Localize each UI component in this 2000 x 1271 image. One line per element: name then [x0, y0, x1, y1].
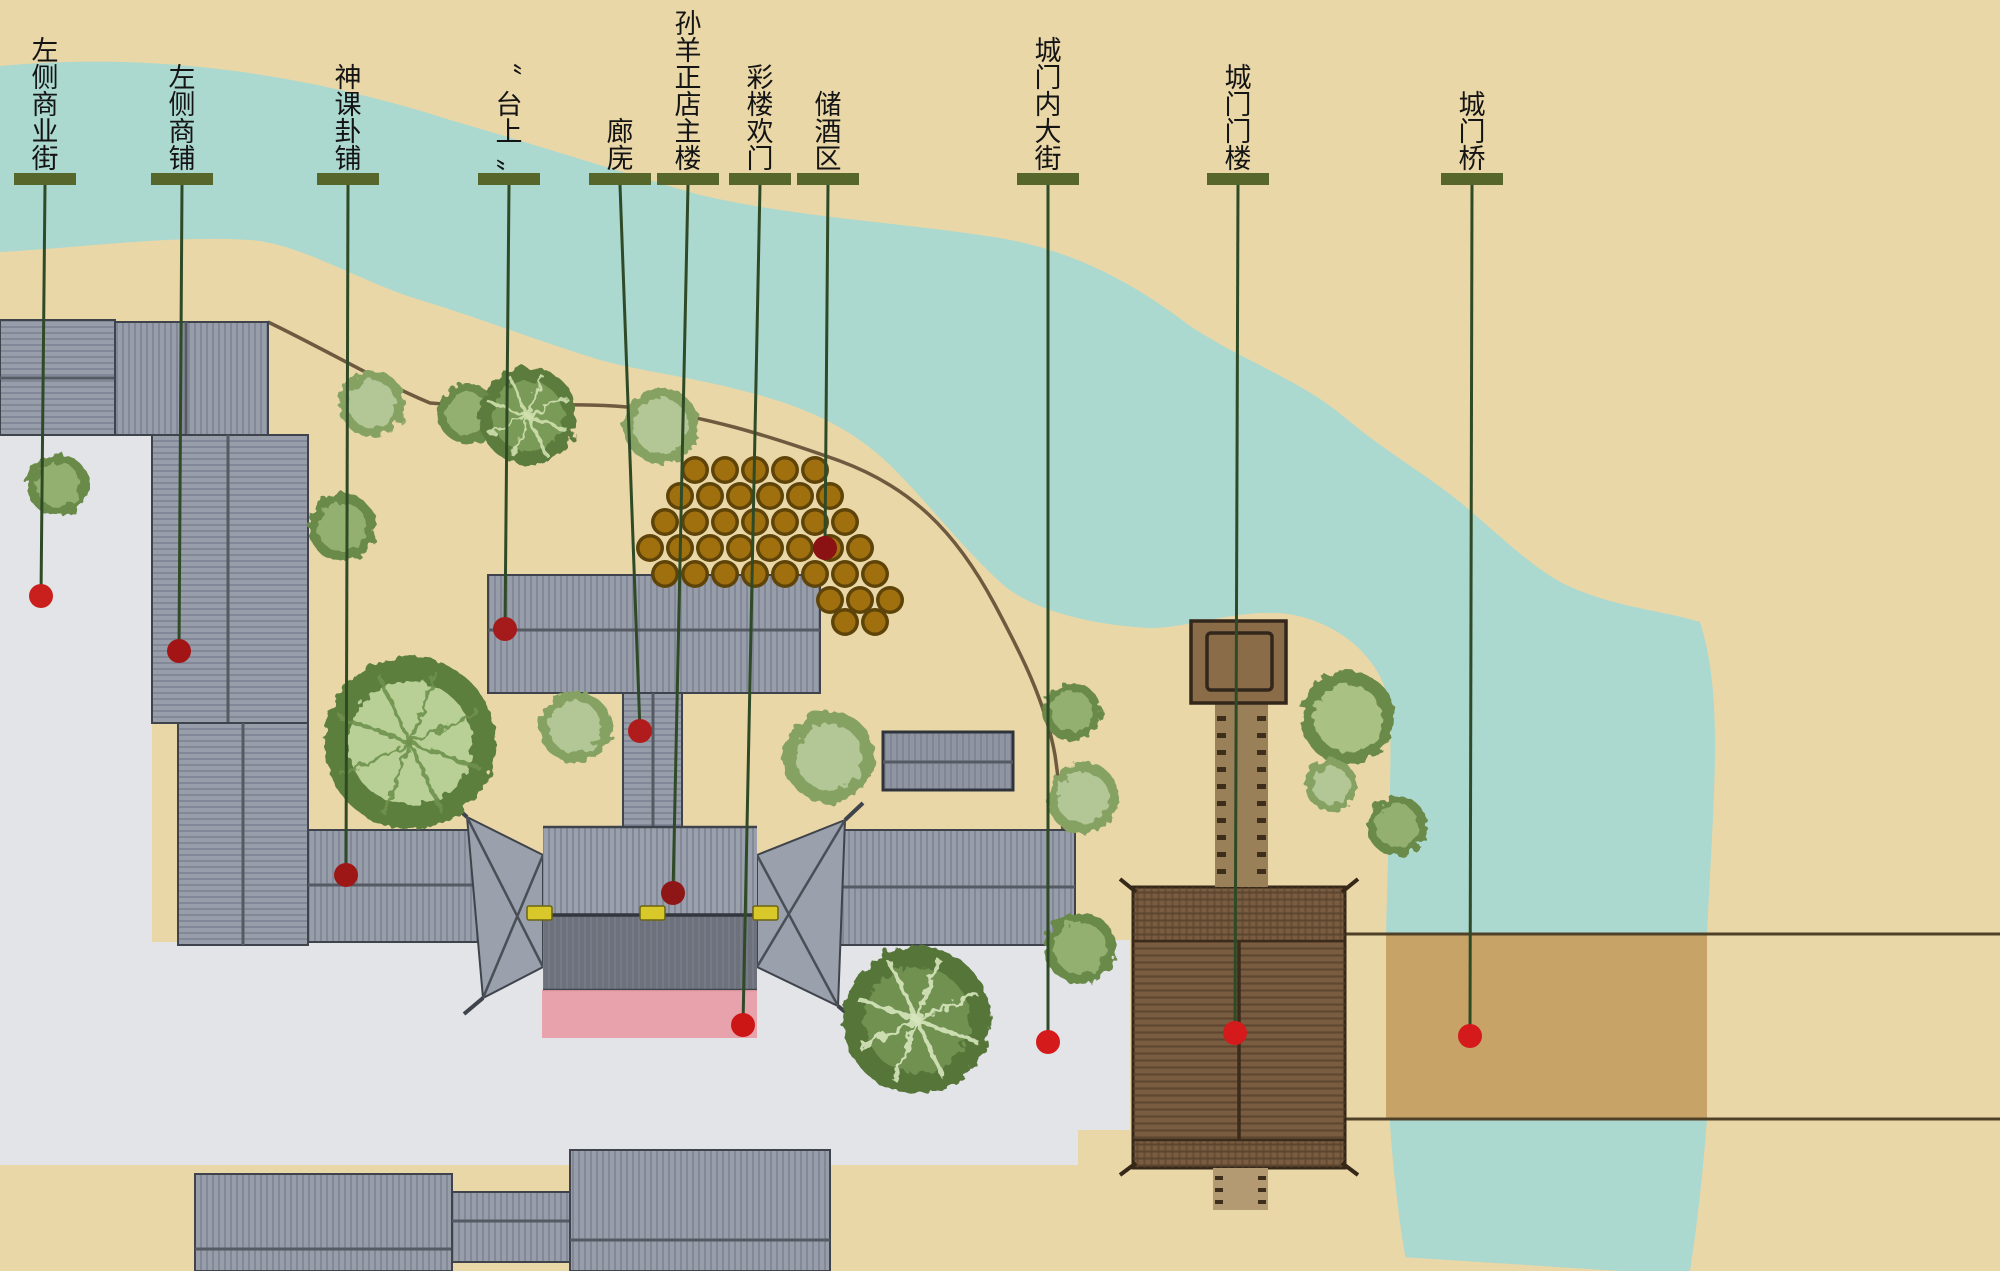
red-carpet [542, 990, 757, 1038]
walkway-step [1257, 750, 1266, 755]
wine-jar [861, 608, 889, 636]
stub-step [1215, 1188, 1223, 1192]
wine-jar [681, 560, 709, 588]
wine-jar [831, 508, 859, 536]
walkway-step [1217, 818, 1226, 823]
stub-step [1258, 1200, 1266, 1204]
label-text: 神课卦铺 [335, 63, 362, 175]
wine-jar [756, 482, 784, 510]
label-text: 孙羊正店主楼 [675, 9, 702, 175]
tree [623, 388, 699, 464]
walkway-step [1257, 818, 1266, 823]
wine-jar [771, 508, 799, 536]
building-divination-shop-row [308, 830, 490, 942]
walkway-step [1217, 852, 1226, 857]
wine-jar [816, 482, 844, 510]
building-west-shops-lower [178, 723, 308, 945]
wine-jar [831, 608, 859, 636]
wine-jar [741, 560, 769, 588]
walkway-step [1217, 750, 1226, 755]
marker-dot [493, 617, 517, 641]
marker-dot [167, 639, 191, 663]
walkway-step [1217, 835, 1226, 840]
walkway-step [1257, 852, 1266, 857]
gold-lintel [640, 906, 665, 920]
gold-lintel [527, 906, 552, 920]
stub-step [1215, 1200, 1223, 1204]
tree [479, 367, 577, 465]
walkway-step [1217, 801, 1226, 806]
building-shop-row-nw-a [0, 320, 115, 435]
building-south-block-west [195, 1174, 452, 1271]
marker-dot [1458, 1024, 1482, 1048]
tree [539, 691, 611, 763]
wine-jar [771, 560, 799, 588]
marker-dot [1223, 1021, 1247, 1045]
marker-dot [1036, 1030, 1060, 1054]
wine-jar [681, 508, 709, 536]
walkway-step [1217, 767, 1226, 772]
marker-dot [628, 719, 652, 743]
wall-walkway [1215, 703, 1268, 887]
stub-step [1258, 1176, 1266, 1180]
label-text: 左侧商业街 [32, 36, 59, 175]
label-text: 〝台上〟 [496, 63, 523, 175]
stub-step [1258, 1188, 1266, 1192]
site-plan-map: 左侧商业街左侧商铺神课卦铺〝台上〟廊庑孙羊正店主楼彩楼欢门储酒区城门内大街城门门… [0, 0, 2000, 1271]
building-small-outbuilding [883, 732, 1013, 790]
label-text: 城门内大街 [1035, 36, 1062, 175]
wine-jar [726, 482, 754, 510]
leader-line [346, 185, 348, 875]
wine-jar [786, 534, 814, 562]
tree [783, 711, 875, 803]
wine-jar [681, 456, 709, 484]
walkway-step [1257, 784, 1266, 789]
marker-dot [29, 584, 53, 608]
wine-jar [861, 560, 889, 588]
wine-jar [771, 456, 799, 484]
wine-jar [651, 560, 679, 588]
tree [1367, 796, 1427, 856]
label-text: 城门桥 [1459, 90, 1486, 175]
walkway-step [1257, 767, 1266, 772]
walkway-step [1257, 801, 1266, 806]
building-west-shops-upper [152, 435, 308, 723]
wine-jar [711, 508, 739, 536]
wine-jar [726, 534, 754, 562]
walkway-step [1217, 869, 1226, 874]
tree [1305, 759, 1357, 811]
wine-jar [786, 482, 814, 510]
stub-step [1215, 1176, 1223, 1180]
label-text: 廊庑 [607, 117, 634, 175]
building-shop-row-nw-b [115, 322, 268, 435]
marker-dot [661, 881, 685, 905]
marker-dot [813, 536, 837, 560]
walkway-step [1257, 716, 1266, 721]
wine-jar [711, 456, 739, 484]
tree [324, 657, 496, 829]
gate-bridge-deck [1386, 934, 1707, 1119]
walkway-step [1257, 733, 1266, 738]
building-stage-main-building [488, 575, 820, 693]
building-corridor-wing [623, 693, 682, 827]
wine-jar [846, 534, 874, 562]
wine-jar [831, 560, 859, 588]
wine-jar [741, 508, 769, 536]
walkway-step [1257, 869, 1266, 874]
tree [27, 454, 89, 516]
building-south-block-center [570, 1150, 830, 1271]
wine-jar [696, 534, 724, 562]
marker-dot [334, 863, 358, 887]
wine-jar [696, 482, 724, 510]
wine-jar [756, 534, 784, 562]
label-text: 彩楼欢门 [747, 63, 774, 175]
tree [843, 946, 991, 1094]
label-text: 城门门楼 [1225, 63, 1252, 175]
wine-jar [636, 534, 664, 562]
wine-jar [711, 560, 739, 588]
gold-lintel [753, 906, 778, 920]
walkway-step [1217, 784, 1226, 789]
tree [308, 493, 376, 561]
building-south-connector [452, 1192, 575, 1262]
marker-dot [731, 1013, 755, 1037]
tree [1043, 683, 1101, 741]
leader-line [1470, 185, 1472, 1036]
wine-jar [801, 560, 829, 588]
building-east-wing-row [820, 830, 1075, 945]
tree [1047, 762, 1119, 834]
walkway-step [1217, 716, 1226, 721]
walkway-step [1257, 835, 1266, 840]
label-text: 左侧商铺 [169, 63, 196, 175]
wine-jar [651, 508, 679, 536]
tree [1044, 912, 1116, 984]
walkway-step [1217, 733, 1226, 738]
tree [1301, 671, 1395, 765]
label-text: 储酒区 [815, 90, 842, 175]
